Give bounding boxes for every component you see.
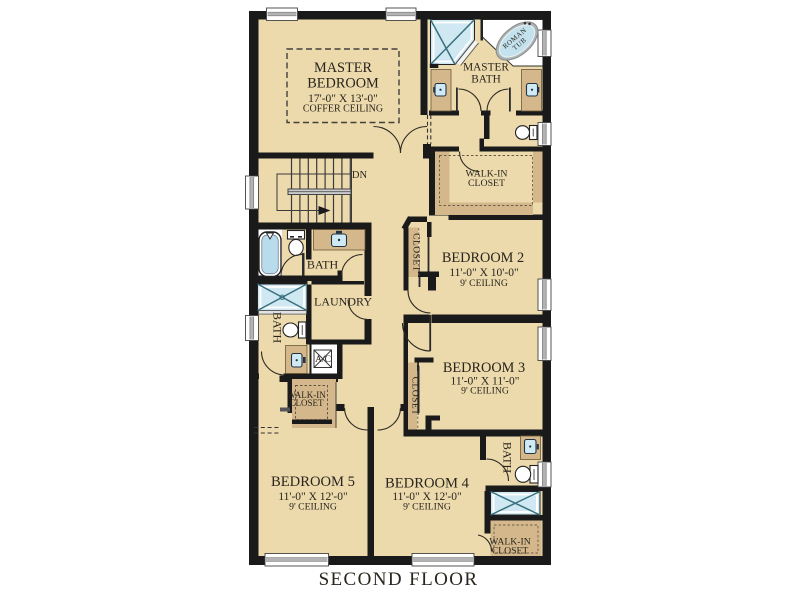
svg-text:BATH: BATH <box>271 312 285 344</box>
svg-text:CLOSET: CLOSET <box>410 377 420 416</box>
svg-text:9' CEILING: 9' CEILING <box>289 502 337 513</box>
svg-text:LAUNDRY: LAUNDRY <box>314 295 372 309</box>
svg-text:BATH: BATH <box>501 442 515 474</box>
svg-text:BEDROOM 2: BEDROOM 2 <box>442 250 524 266</box>
svg-text:MASTER: MASTER <box>314 60 372 76</box>
svg-text:DN: DN <box>352 170 368 181</box>
svg-text:CLOSET: CLOSET <box>289 398 324 408</box>
svg-text:9' CEILING: 9' CEILING <box>460 278 508 289</box>
svg-text:BATH: BATH <box>471 73 501 85</box>
svg-text:9' CEILING: 9' CEILING <box>461 386 509 397</box>
svg-text:BEDROOM 4: BEDROOM 4 <box>385 476 470 492</box>
svg-text:A/C: A/C <box>315 355 331 365</box>
svg-text:COFFER CEILING: COFFER CEILING <box>303 104 383 115</box>
svg-text:BATH: BATH <box>307 258 339 272</box>
svg-text:CLOSET: CLOSET <box>492 546 529 557</box>
svg-text:9' CEILING: 9' CEILING <box>403 502 451 513</box>
svg-text:BEDROOM 5: BEDROOM 5 <box>271 474 355 490</box>
svg-text:CLOSET: CLOSET <box>468 178 505 189</box>
svg-text:SECOND FLOOR: SECOND FLOOR <box>319 569 479 590</box>
svg-text:CLOSET: CLOSET <box>410 233 420 272</box>
svg-text:MASTER: MASTER <box>463 62 509 74</box>
svg-text:BEDROOM: BEDROOM <box>307 76 379 92</box>
svg-text:BEDROOM 3: BEDROOM 3 <box>443 360 525 376</box>
